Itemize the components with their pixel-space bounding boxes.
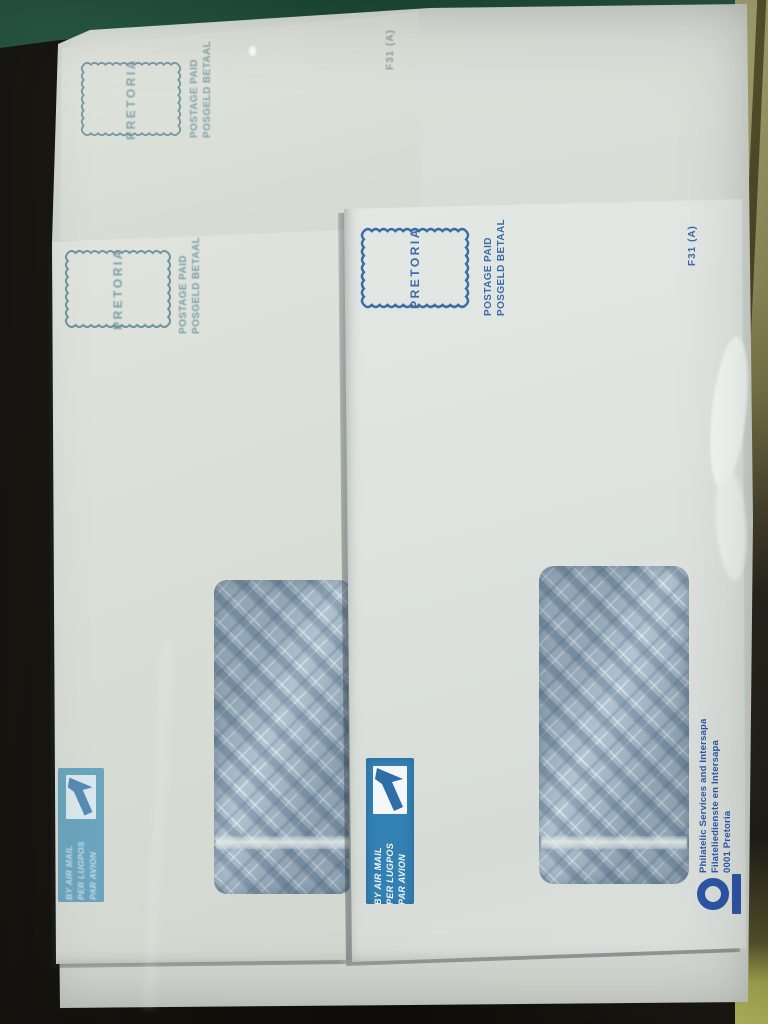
address-window [539, 566, 689, 884]
postage-paid-imprint: POSTAGE PAID POSGELD BETAAL [176, 242, 204, 334]
form-code-label: F31 (A) [383, 22, 397, 70]
stamp-frame-icon: PRETORIA [80, 60, 182, 138]
postage-line-en: POSTAGE PAID [188, 50, 201, 138]
airmail-bird-icon [373, 766, 407, 814]
airmail-text: BY AIR MAIL PER LUGPOS PAR AVION [62, 820, 100, 900]
philatelic-services-imprint: Philatelic Services and Intersapa Filate… [698, 697, 734, 873]
address-window [214, 580, 352, 894]
envelope-front: PRETORIA POSTAGE PAID POSGELD BETAAL F31… [344, 196, 748, 966]
airmail-label: BY AIR MAIL PER LUGPOS PAR AVION [366, 758, 414, 904]
postage-line-af: POSGELD BETAAL [190, 242, 203, 334]
stamp-city-label: PRETORIA [64, 248, 172, 330]
photo-of-envelopes: PRETORIA POSTAGE PAID POSGELD BETAAL F31… [0, 0, 768, 1024]
airmail-label: BY AIR MAIL PER LUGPOS PAR AVION [58, 768, 104, 902]
airmail-text: BY AIR MAIL PER LUGPOS PAR AVION [369, 815, 411, 904]
light-speck [249, 46, 256, 56]
postage-line-af: POSGELD BETAAL [201, 50, 214, 138]
postage-paid-imprint: POSTAGE PAID POSGELD BETAAL [188, 50, 214, 138]
airmail-bird-icon [66, 775, 96, 819]
postage-paid-imprint: POSTAGE PAID POSGELD BETAAL [481, 224, 509, 316]
stamp-frame-icon: PRETORIA [64, 248, 172, 330]
envelope-back-middle: PRETORIA POSTAGE PAID POSGELD BETAAL BY … [50, 226, 352, 966]
postage-line-af: POSGELD BETAAL [495, 224, 508, 316]
stamp-city-label: PRETORIA [360, 226, 470, 310]
stamp-frame-icon: PRETORIA [360, 226, 470, 310]
postage-line-en: POSTAGE PAID [482, 224, 495, 316]
philatelic-services-logo-icon [696, 872, 746, 916]
window-inner-fold [216, 836, 350, 849]
envelope-back-top: PRETORIA POSTAGE PAID POSGELD BETAAL F31… [58, 10, 424, 240]
window-inner-fold [541, 836, 687, 849]
form-code-label: F31 (A) [685, 216, 699, 266]
stamp-city-label: PRETORIA [80, 60, 182, 138]
postage-line-en: POSTAGE PAID [177, 242, 190, 334]
